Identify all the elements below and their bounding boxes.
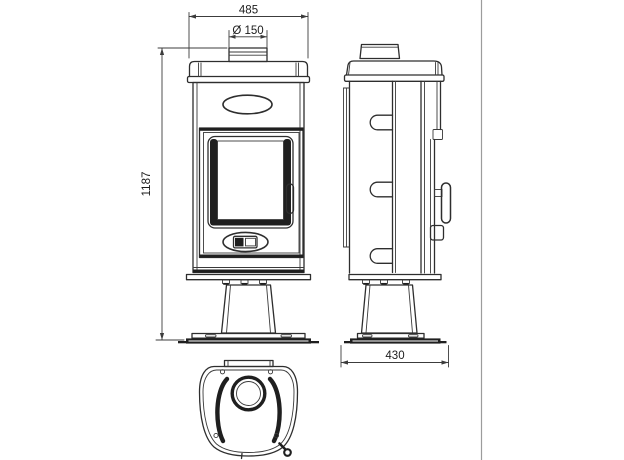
dim-flue-diameter: Ø 150	[229, 25, 267, 48]
base-plate-side	[344, 334, 447, 344]
top-plate-front	[188, 62, 310, 83]
side-view	[344, 45, 451, 344]
rear-heat-shield	[344, 88, 350, 247]
flue-opening	[232, 377, 265, 410]
mounting-tabs-side	[363, 280, 410, 285]
dim-width-label: 485	[239, 5, 258, 17]
base-plate-front	[178, 334, 319, 344]
body-bottom-front	[187, 268, 311, 285]
dim-flue-label: Ø 150	[232, 25, 263, 37]
stove-technical-drawing: 485 Ø 150 1187 430	[0, 0, 624, 460]
door-hinge-upper	[433, 130, 443, 140]
flue-collar-front	[229, 48, 267, 62]
door-latch-lower	[431, 226, 444, 241]
door-handle-side	[435, 183, 451, 223]
window-glass	[218, 141, 284, 220]
dim-height-label: 1187	[141, 172, 153, 197]
dim-depth-label: 430	[385, 350, 404, 362]
pedestal-side	[362, 285, 418, 333]
body-bottom-side	[349, 275, 441, 285]
top-back-panel	[225, 361, 274, 367]
top-center-mark	[242, 454, 243, 459]
air-vent-oval	[223, 95, 272, 114]
side-vent-slots	[370, 115, 392, 263]
front-view	[178, 48, 319, 344]
mounting-tabs-front	[223, 280, 267, 285]
stove-door	[200, 128, 304, 258]
top-plate-side	[345, 61, 445, 81]
pedestal-front	[222, 285, 276, 333]
air-control	[223, 232, 268, 251]
dim-depth: 430	[341, 346, 449, 368]
stove-body-side	[344, 81, 451, 273]
door-window	[208, 137, 293, 229]
drawing-page: 485 Ø 150 1187 430	[0, 0, 624, 460]
top-view	[200, 361, 298, 459]
flue-collar-side	[360, 45, 400, 59]
air-control-slider	[235, 238, 244, 247]
